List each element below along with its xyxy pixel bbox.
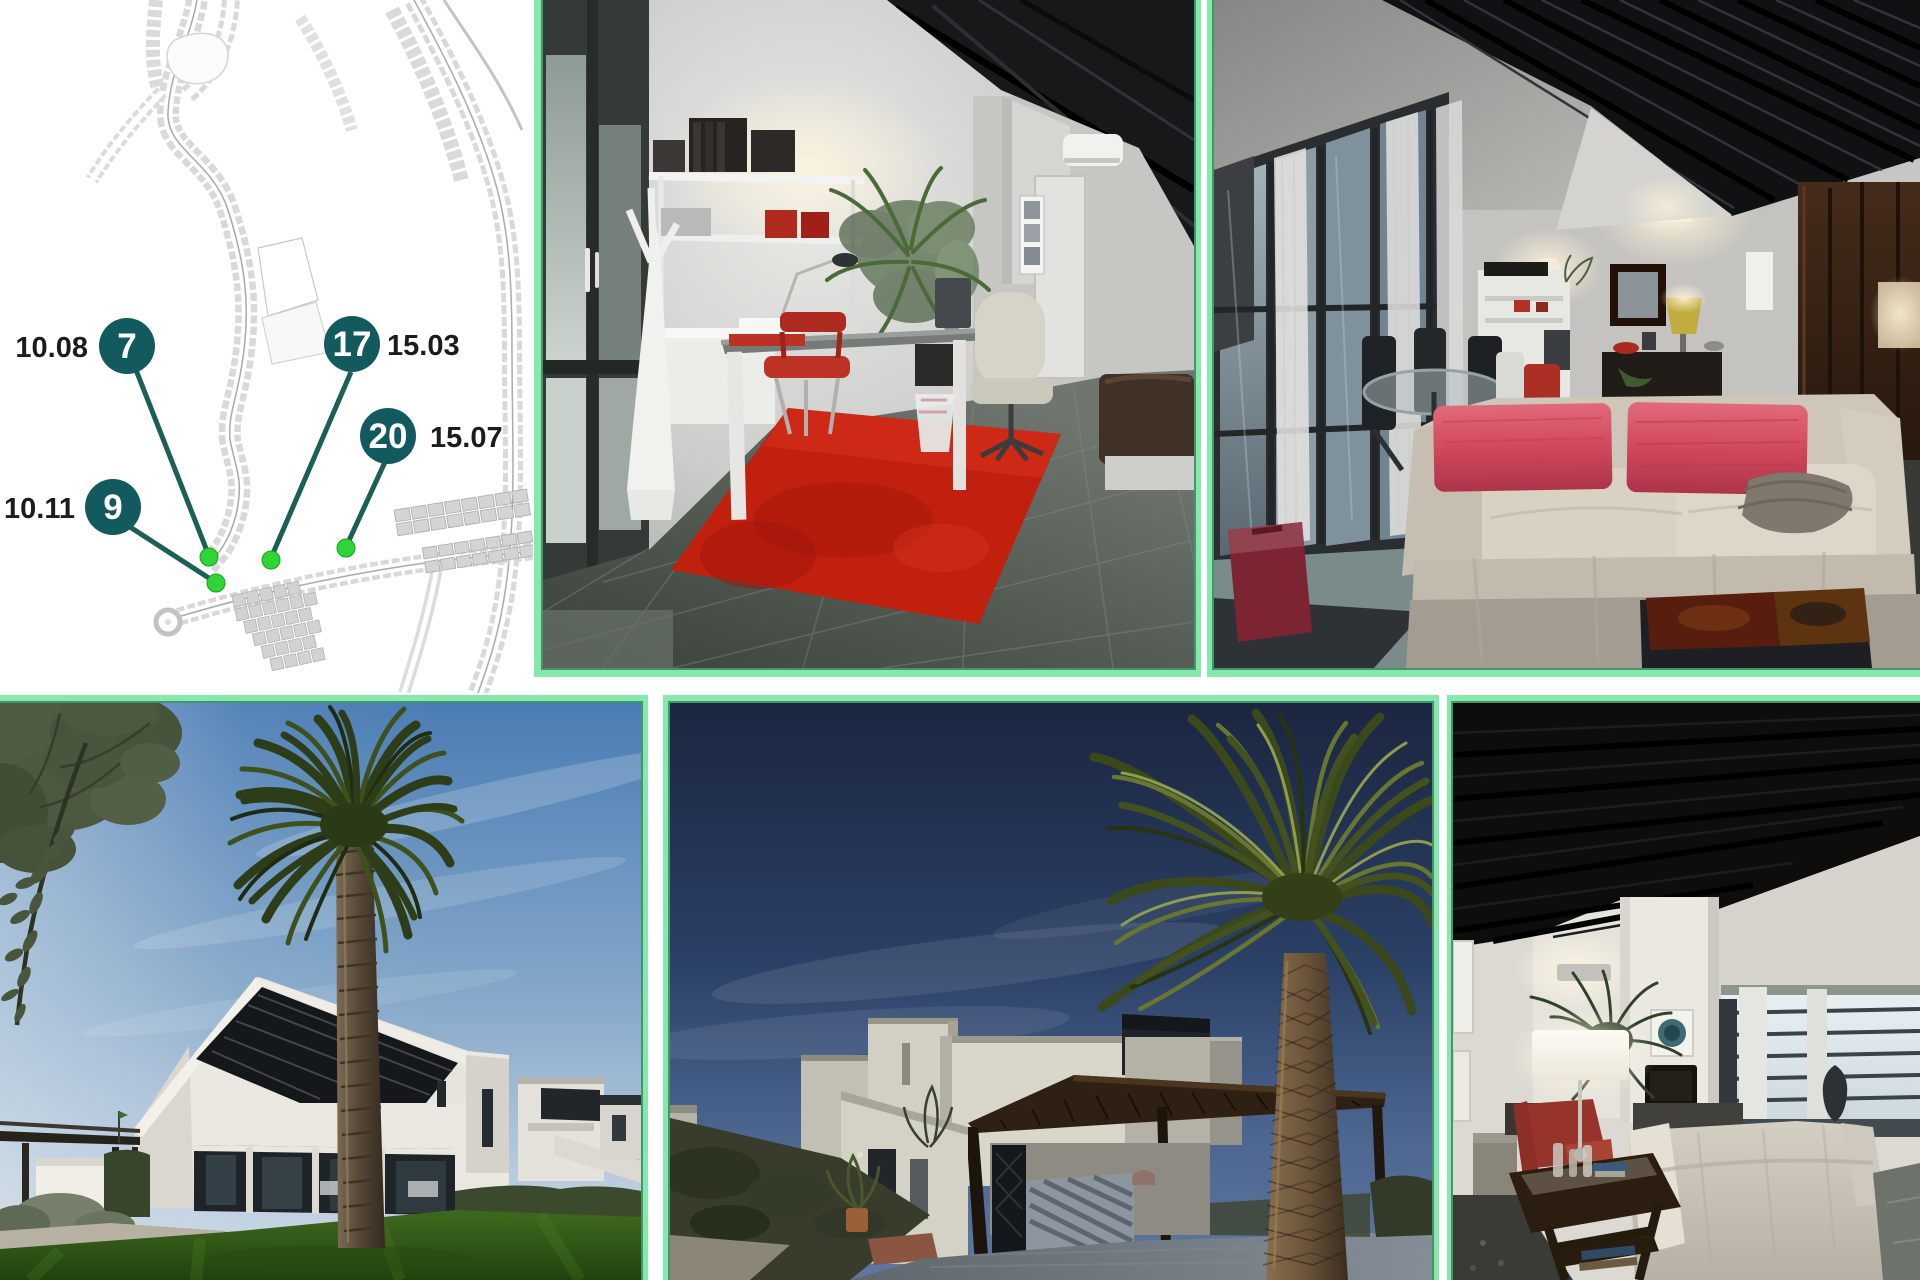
svg-text:15.07: 15.07 [430,422,503,454]
svg-text:20: 20 [369,417,408,456]
svg-text:17: 17 [333,325,372,364]
svg-text:9: 9 [103,488,122,527]
svg-text:7: 7 [117,327,136,366]
svg-text:15.03: 15.03 [387,330,460,362]
svg-text:10.11: 10.11 [4,493,75,525]
svg-text:10.08: 10.08 [15,332,88,364]
